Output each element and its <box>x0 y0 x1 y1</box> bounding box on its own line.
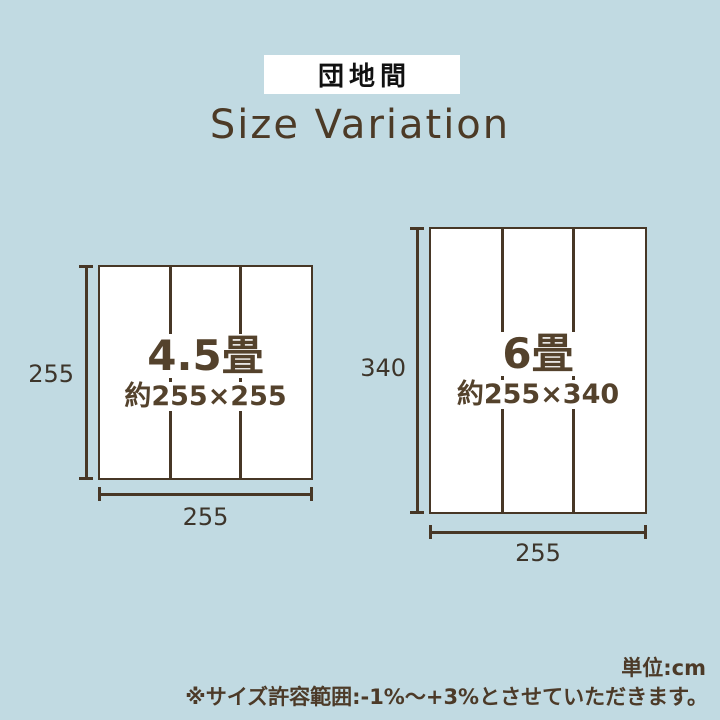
dimension-bar <box>101 493 310 496</box>
dimension-cap <box>310 487 313 501</box>
page-title: Size Variation <box>0 102 720 148</box>
dimension-cap <box>79 477 93 480</box>
rug-size-name: 4.5畳 <box>139 334 271 378</box>
size-tolerance-note: ※サイズ許容範囲:-1%〜+3%とさせていただきます。 <box>185 681 708 711</box>
rug-diagram-4-5jo: 4.5畳 約255×255 <box>98 265 313 480</box>
header-badge: 団地間 <box>264 55 460 94</box>
height-dimension-label: 255 <box>20 362 74 386</box>
rug-label-group: 6畳 約255×340 <box>431 229 645 512</box>
height-dimension-label: 340 <box>352 356 406 380</box>
height-dimension-line <box>410 227 424 514</box>
size-variation-infographic: 団地間 Size Variation 4.5畳 約255×255 255 255… <box>0 0 720 720</box>
dimension-cap <box>410 511 424 514</box>
unit-note: 単位:cm <box>621 652 706 682</box>
height-dimension-line <box>79 265 93 480</box>
width-dimension-line <box>98 487 313 501</box>
rug-size-name: 6畳 <box>494 332 581 376</box>
header-badge-label: 団地間 <box>318 56 411 93</box>
rug-label-group: 4.5畳 約255×255 <box>100 267 311 478</box>
width-dimension-label: 255 <box>429 541 647 565</box>
rug-approx-dimensions: 約255×340 <box>451 380 625 410</box>
dimension-bar <box>432 531 644 534</box>
width-dimension-line <box>429 525 647 539</box>
dimension-bar <box>85 268 88 477</box>
rug-approx-dimensions: 約255×255 <box>118 382 292 412</box>
dimension-bar <box>416 230 419 511</box>
dimension-cap <box>644 525 647 539</box>
rug-diagram-6jo: 6畳 約255×340 <box>429 227 647 514</box>
width-dimension-label: 255 <box>98 505 313 529</box>
